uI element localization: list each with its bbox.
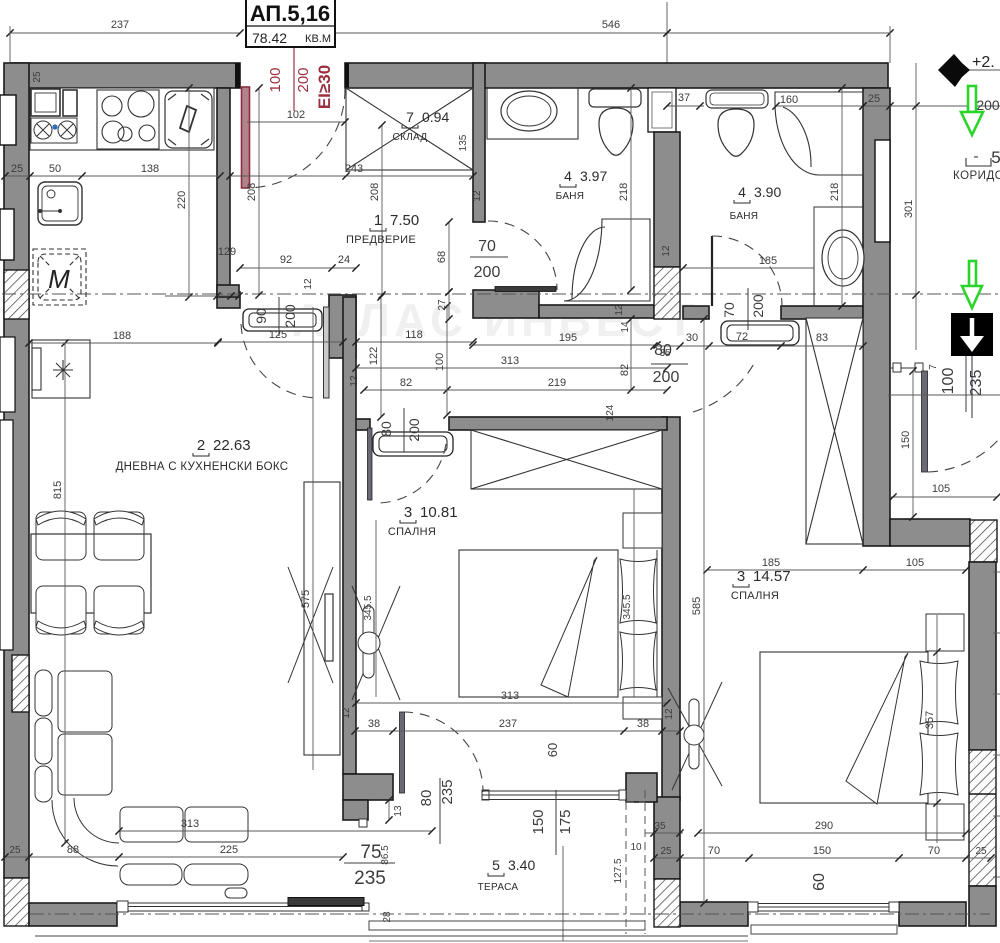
svg-text:345.5: 345.5 <box>622 594 633 619</box>
svg-text:10: 10 <box>630 842 642 853</box>
svg-text:25: 25 <box>11 163 23 175</box>
svg-text:12: 12 <box>661 245 672 257</box>
svg-text:235: 235 <box>439 779 456 804</box>
svg-text:EI≥30: EI≥30 <box>315 65 334 109</box>
svg-text:14.57: 14.57 <box>753 568 791 585</box>
svg-text:150: 150 <box>530 809 547 834</box>
svg-text:243: 243 <box>345 163 363 175</box>
svg-text:70: 70 <box>708 845 720 857</box>
svg-text:313: 313 <box>501 690 519 702</box>
svg-text:118: 118 <box>405 329 423 341</box>
svg-text:235: 235 <box>354 868 386 889</box>
svg-text:235: 235 <box>968 370 985 397</box>
svg-text:219: 219 <box>548 377 566 389</box>
svg-text:70: 70 <box>478 238 496 255</box>
svg-text:90: 90 <box>253 308 269 324</box>
svg-text:200: 200 <box>976 97 1000 113</box>
svg-text:25: 25 <box>9 845 21 856</box>
svg-text:86.5: 86.5 <box>380 845 391 865</box>
svg-text:237: 237 <box>111 19 129 31</box>
svg-text:195: 195 <box>559 332 577 344</box>
svg-text:12: 12 <box>472 190 483 202</box>
svg-text:5: 5 <box>991 148 1000 167</box>
svg-text:135: 135 <box>458 134 469 151</box>
svg-text:БАНЯ: БАНЯ <box>556 191 585 202</box>
svg-text:КВ.М: КВ.М <box>305 33 331 45</box>
svg-text:301: 301 <box>903 200 915 218</box>
svg-text:200: 200 <box>750 294 766 318</box>
svg-text:188: 188 <box>113 330 131 342</box>
svg-text:100: 100 <box>267 67 284 92</box>
svg-text:СКЛАД: СКЛАД <box>393 132 428 143</box>
svg-text:100: 100 <box>434 353 446 371</box>
svg-text:КОРИДОР: КОРИДОР <box>953 170 1000 182</box>
svg-text:25: 25 <box>868 93 880 105</box>
svg-text:105: 105 <box>906 557 924 569</box>
svg-text:12: 12 <box>664 708 675 720</box>
svg-text:105: 105 <box>932 483 950 495</box>
svg-text:92: 92 <box>280 254 292 266</box>
svg-text:27: 27 <box>437 299 448 311</box>
svg-text:37: 37 <box>678 92 690 104</box>
svg-text:68: 68 <box>436 251 448 263</box>
svg-text:575: 575 <box>300 590 312 608</box>
svg-text:200: 200 <box>653 369 680 386</box>
svg-text:35: 35 <box>654 821 666 832</box>
svg-text:290: 290 <box>815 820 833 832</box>
svg-text:83: 83 <box>816 332 828 344</box>
svg-text:5: 5 <box>492 857 500 873</box>
svg-text:815: 815 <box>52 481 64 499</box>
svg-text:25: 25 <box>660 846 672 857</box>
svg-text:313: 313 <box>501 355 519 367</box>
svg-text:185: 185 <box>759 255 777 267</box>
svg-text:200: 200 <box>282 304 298 328</box>
svg-text:122: 122 <box>368 347 380 365</box>
svg-text:3.40: 3.40 <box>508 857 535 873</box>
svg-text:3.90: 3.90 <box>754 184 781 200</box>
svg-text:7: 7 <box>406 109 414 125</box>
svg-text:345.5: 345.5 <box>363 595 374 620</box>
svg-text:38: 38 <box>637 718 649 730</box>
svg-text:3: 3 <box>737 568 745 585</box>
svg-text:150: 150 <box>813 845 831 857</box>
svg-text:М: М <box>48 264 70 294</box>
svg-text:7: 7 <box>928 364 939 370</box>
svg-text:4: 4 <box>738 184 746 200</box>
svg-text:38: 38 <box>368 718 380 730</box>
svg-text:75: 75 <box>360 842 381 863</box>
svg-text:80: 80 <box>654 342 672 359</box>
svg-text:150: 150 <box>900 431 912 449</box>
svg-text:ТЕРАСА: ТЕРАСА <box>478 882 519 893</box>
svg-text:88: 88 <box>67 844 79 856</box>
svg-text:7.50: 7.50 <box>390 212 419 229</box>
svg-text:225: 225 <box>220 844 238 856</box>
svg-text:125: 125 <box>269 329 287 341</box>
svg-text:218: 218 <box>618 183 630 201</box>
svg-text:200: 200 <box>406 418 422 442</box>
svg-text:АП.5,16: АП.5,16 <box>250 1 330 26</box>
svg-text:585: 585 <box>691 597 703 615</box>
svg-text:ПРЕДВЕРИЕ: ПРЕДВЕРИЕ <box>346 234 416 246</box>
svg-text:72: 72 <box>736 331 748 343</box>
svg-text:80: 80 <box>378 421 394 437</box>
svg-text:60: 60 <box>811 873 828 891</box>
svg-text:70: 70 <box>721 302 737 318</box>
svg-text:30: 30 <box>686 332 698 344</box>
svg-text:175: 175 <box>557 809 574 834</box>
svg-text:12: 12 <box>341 707 352 719</box>
svg-text:50: 50 <box>49 163 61 175</box>
svg-text:24: 24 <box>338 254 350 266</box>
svg-text:-: - <box>974 148 979 165</box>
svg-text:22.63: 22.63 <box>213 437 251 454</box>
svg-text:357: 357 <box>924 711 936 729</box>
svg-text:129: 129 <box>218 246 236 258</box>
svg-text:+2.: +2. <box>972 54 995 71</box>
svg-text:12: 12 <box>349 375 360 387</box>
svg-text:2: 2 <box>197 437 205 454</box>
svg-text:12: 12 <box>614 304 625 316</box>
svg-text:160: 160 <box>780 94 798 106</box>
svg-text:208: 208 <box>369 183 381 201</box>
svg-text:138: 138 <box>141 163 159 175</box>
svg-text:4: 4 <box>564 168 572 184</box>
svg-text:313: 313 <box>181 818 199 830</box>
svg-text:БАНЯ: БАНЯ <box>730 211 759 222</box>
svg-text:208: 208 <box>246 183 258 201</box>
svg-text:0.94: 0.94 <box>422 109 449 125</box>
svg-text:82: 82 <box>619 364 631 376</box>
svg-text:100: 100 <box>940 368 957 395</box>
svg-text:546: 546 <box>602 19 620 31</box>
svg-text:3.97: 3.97 <box>580 168 607 184</box>
svg-text:12: 12 <box>303 278 314 290</box>
svg-text:80: 80 <box>418 790 435 807</box>
svg-text:218: 218 <box>829 183 841 201</box>
svg-text:82: 82 <box>400 377 412 389</box>
svg-text:10.81: 10.81 <box>420 504 458 521</box>
svg-text:25: 25 <box>975 846 987 857</box>
svg-text:СПАЛНЯ: СПАЛНЯ <box>731 590 779 602</box>
svg-text:70: 70 <box>928 845 940 857</box>
svg-text:25: 25 <box>32 71 43 83</box>
svg-text:237: 237 <box>499 718 517 730</box>
svg-text:3: 3 <box>404 504 412 521</box>
svg-text:СПАЛНЯ: СПАЛНЯ <box>388 526 436 538</box>
svg-text:124: 124 <box>605 404 616 421</box>
svg-text:200: 200 <box>295 67 312 92</box>
svg-text:200: 200 <box>474 264 501 281</box>
svg-text:102: 102 <box>287 109 305 121</box>
svg-text:ДНЕВНА С КУХНЕНСКИ БОКС: ДНЕВНА С КУХНЕНСКИ БОКС <box>116 461 289 473</box>
svg-text:13: 13 <box>393 805 404 817</box>
svg-text:220: 220 <box>176 191 188 209</box>
svg-text:14: 14 <box>620 321 631 333</box>
svg-text:1: 1 <box>374 212 382 229</box>
svg-text:127.5: 127.5 <box>613 858 624 883</box>
svg-text:28: 28 <box>382 911 393 923</box>
svg-text:60: 60 <box>545 743 560 757</box>
svg-text:78.42: 78.42 <box>252 30 287 46</box>
